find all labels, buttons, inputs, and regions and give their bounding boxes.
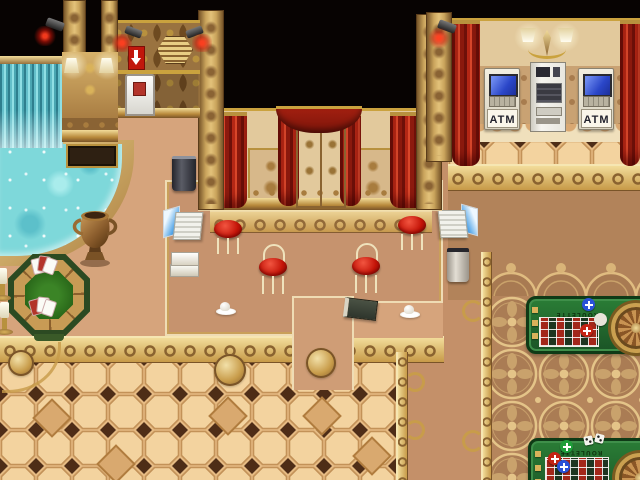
roulette-wheel [615,453,640,480]
skull-chip [594,313,607,326]
casino-chip [582,298,595,311]
bar-chair[interactable] [256,244,290,300]
security-camera [112,26,142,52]
wall-base-molding [62,130,118,142]
casino-chip [560,440,573,453]
vending-machine[interactable] [530,62,566,132]
scroll-ornament [405,372,425,392]
atm-label: ATM [489,114,515,126]
arch-border-floor [486,252,640,298]
trash-bin[interactable] [172,156,196,191]
dice-pair [584,434,610,452]
book-stack[interactable] [170,252,198,276]
playing-cards [32,256,56,274]
utility-door[interactable] [125,74,155,116]
coffee-cup[interactable] [216,302,236,315]
laptop[interactable] [438,204,478,244]
trash-bin[interactable] [447,248,469,282]
laptop[interactable] [163,206,203,246]
bar-chair[interactable] [396,212,428,252]
casino-chip [557,460,570,473]
passage-medallion [306,348,336,378]
scroll-ornament [462,300,484,322]
waterfall [0,64,63,148]
coffee-cup[interactable] [400,305,420,318]
security-camera [184,26,214,52]
corridor-left-trim [396,352,408,480]
candle-stand [0,302,14,338]
bar-chair[interactable] [349,243,383,299]
bar-chair[interactable] [212,216,244,256]
security-camera [428,20,458,48]
candle-stand [0,268,12,304]
casino-scene: ATM ATM ROULETTE ROU [0,0,640,480]
atm-machine[interactable]: ATM [484,68,520,130]
playing-cards [30,297,54,315]
atm-label: ATM [583,114,609,126]
pool-planter [66,144,118,168]
ledger-book[interactable] [343,297,378,321]
atm-machine[interactable]: ATM [578,68,614,130]
lion-medallion [214,354,246,386]
casino-chip [580,324,593,337]
red-curtain [620,20,640,166]
scroll-ornament [405,420,425,440]
security-camera [34,18,64,46]
roulette-wheel [611,303,640,353]
scroll-ornament [462,430,484,452]
right-corridor-floor-lower [397,352,490,480]
atm-room-step-trim [448,164,640,191]
